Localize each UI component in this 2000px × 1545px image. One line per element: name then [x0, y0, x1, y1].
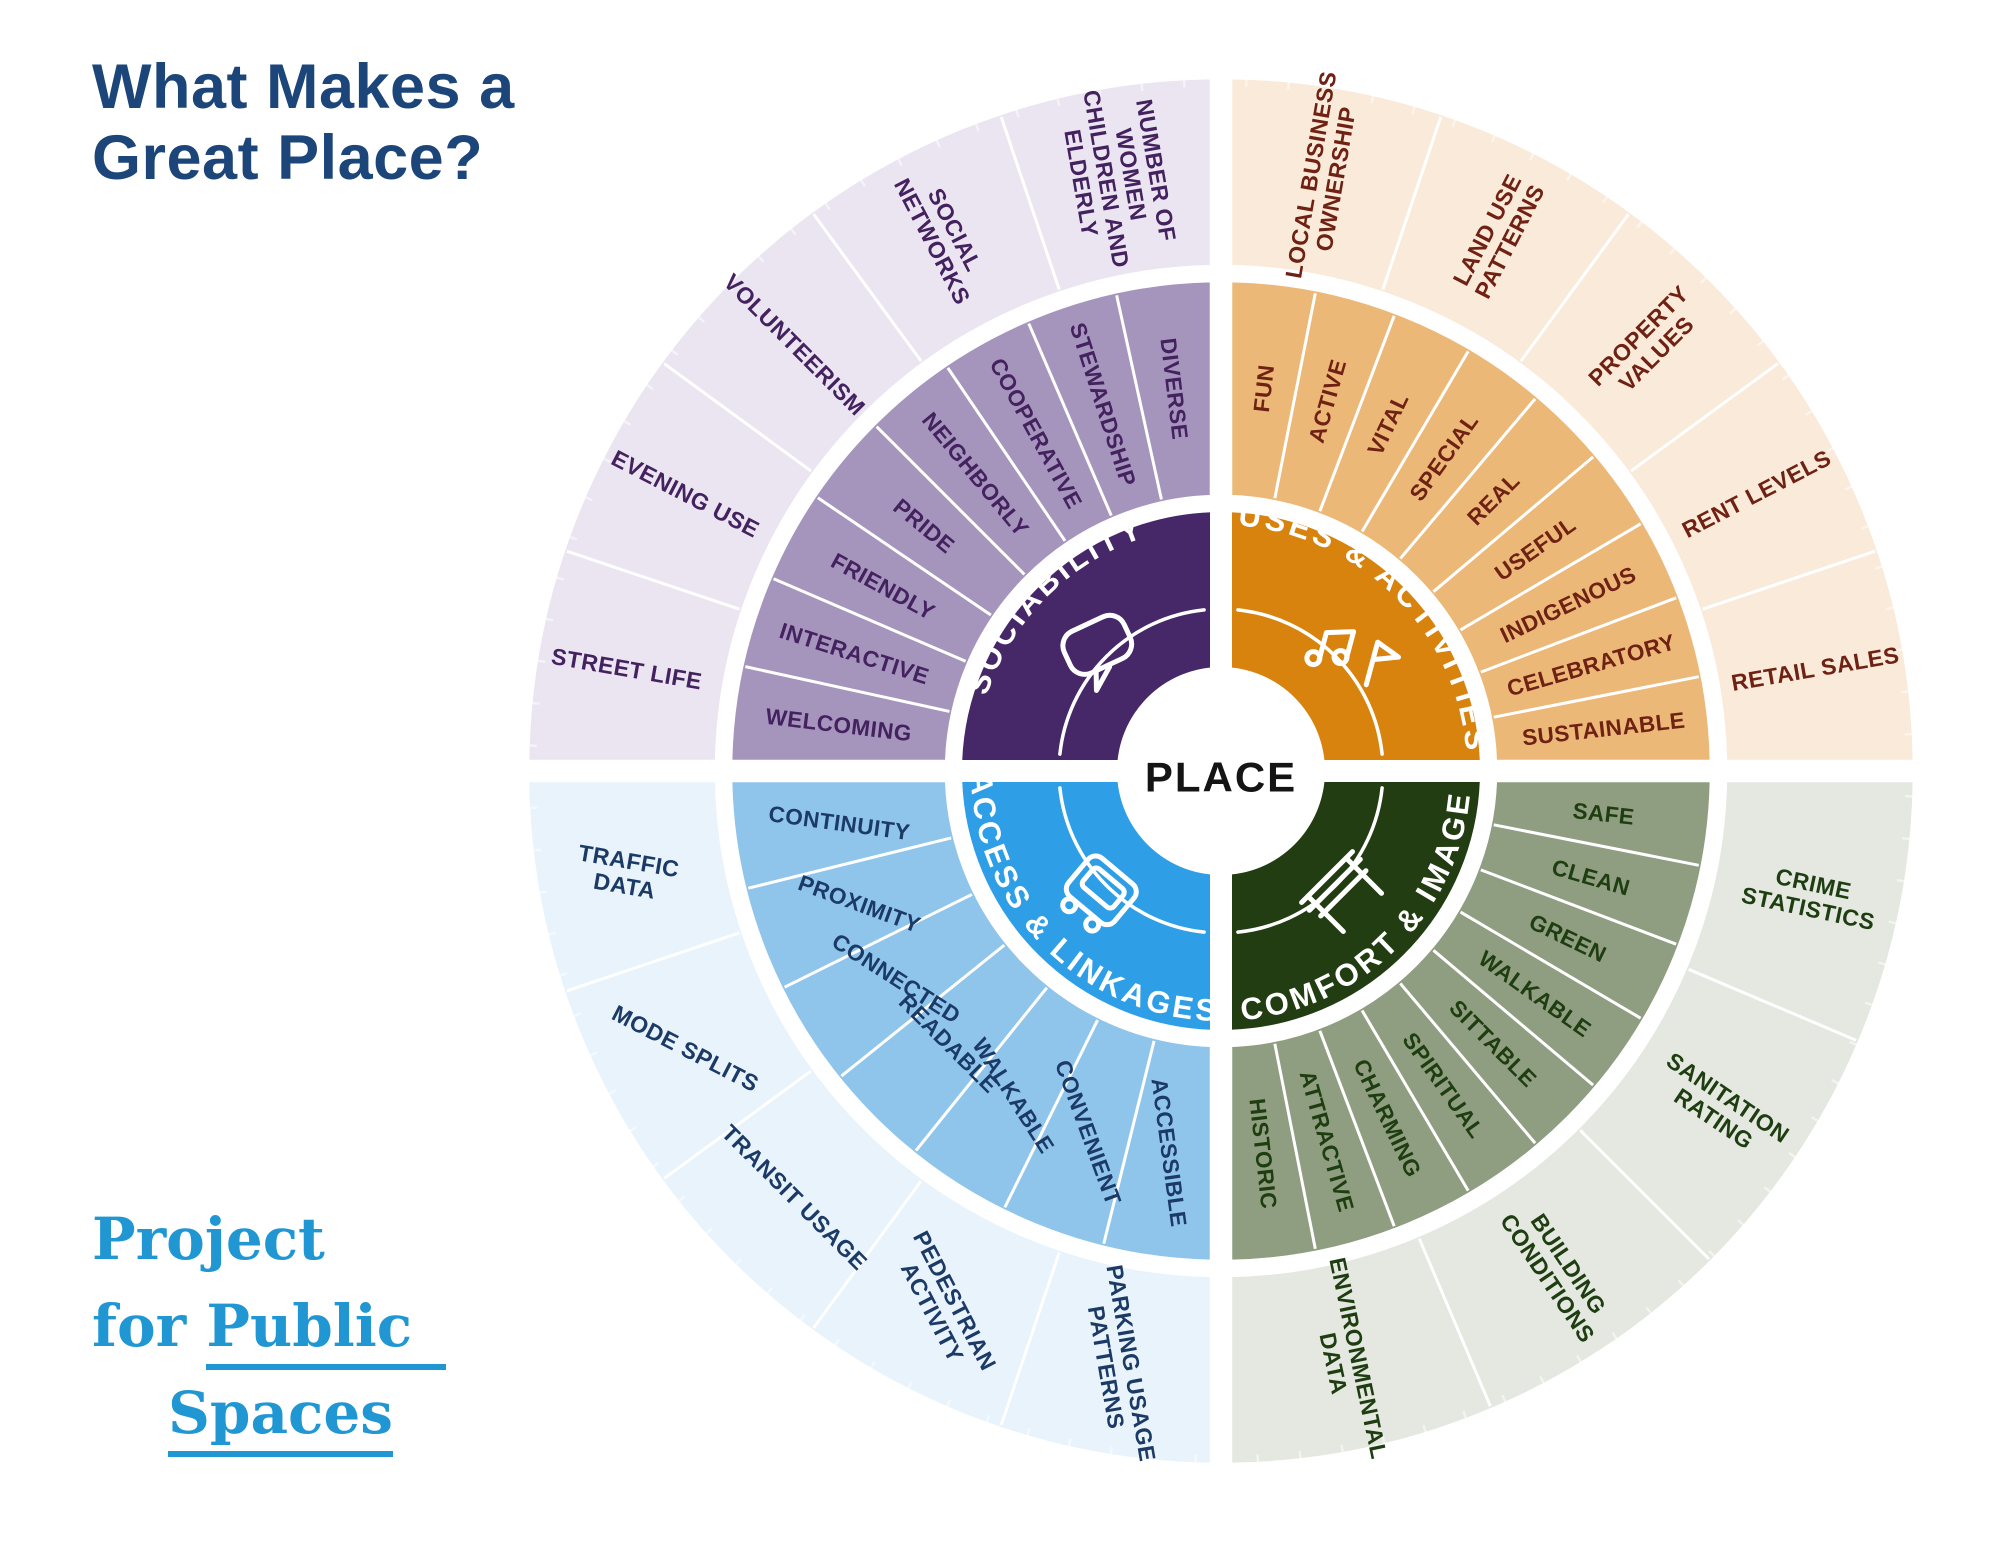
quadrant-top-right: FUNACTIVEVITALSPECIALREALUSEFULINDIGENOU…	[1231, 69, 1914, 761]
quadrant-bottom-left: ACCESSIBLECONVENIENTWALKABLEREADABLECONN…	[528, 771, 1221, 1467]
quadrant-top-left: WELCOMINGINTERACTIVEFRIENDLYPRIDENEIGHBO…	[528, 78, 1211, 761]
center-label: PLACE	[1145, 754, 1297, 801]
pps-logo: Project for Public Spaces	[92, 1196, 446, 1457]
logo-word-project: Project	[92, 1205, 325, 1273]
infographic-canvas: What Makes a Great Place? FUNACTIVEVITAL…	[0, 0, 2000, 1545]
quadrant-bottom-right: SAFECLEANGREENWALKABLESITTABLESPIRITUALC…	[1231, 781, 1914, 1467]
logo-word-spaces: Spaces	[168, 1379, 393, 1457]
logo-word-for: for	[92, 1292, 186, 1360]
wedge-label-fun: FUN	[1248, 363, 1278, 413]
logo-word-public: Public	[206, 1292, 446, 1370]
